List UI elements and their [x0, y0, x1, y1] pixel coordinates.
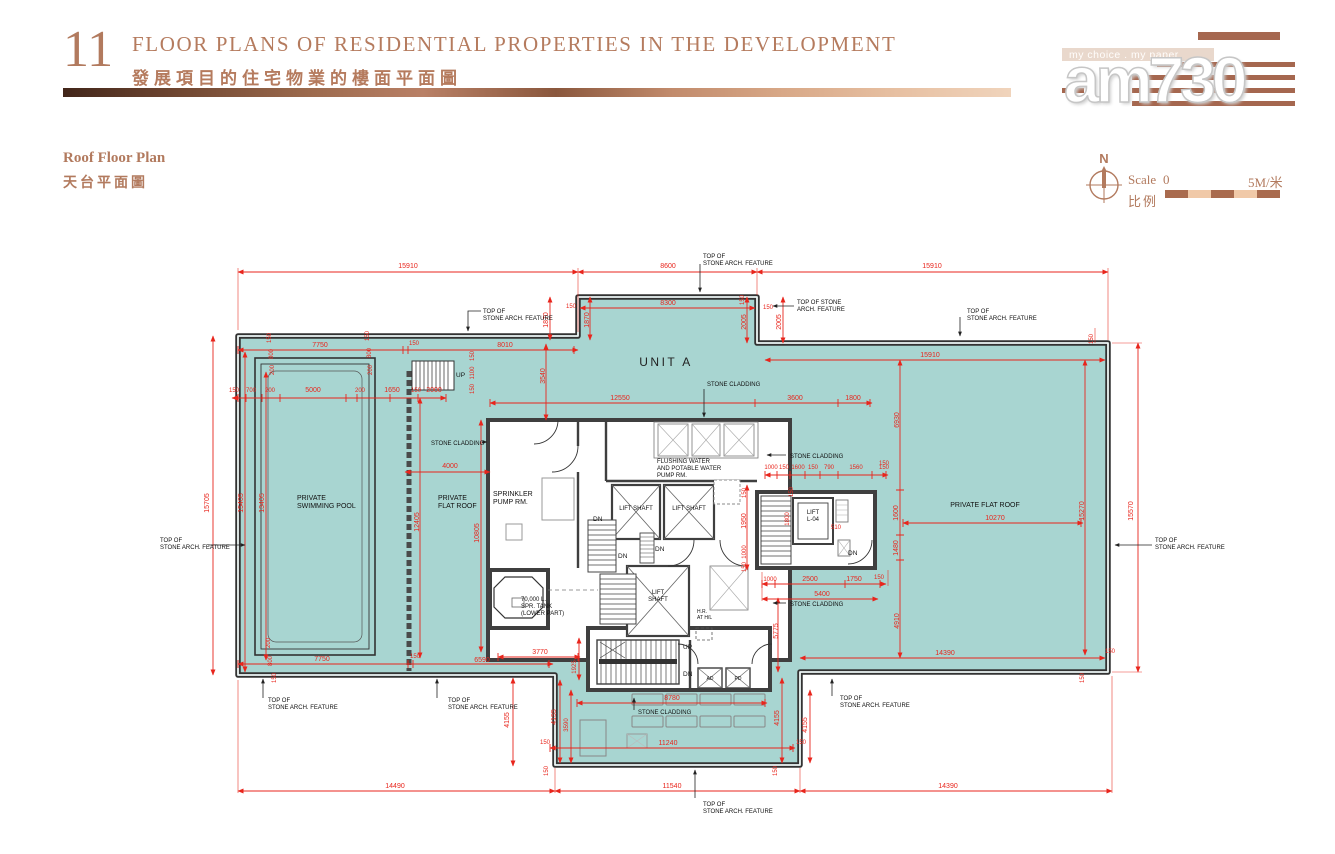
room-label: AD: [707, 676, 714, 682]
dimension-label: 150: [365, 330, 371, 341]
room-label: LIFT SHAFT: [672, 506, 706, 512]
unit-label: UNIT A: [639, 355, 692, 369]
dimension-label: 150: [879, 461, 890, 467]
annotation-label: TOP OFSTONE ARCH. FEATURE: [448, 698, 518, 711]
dimension-label: 1480: [893, 540, 900, 556]
annotation-label: TOP OFSTONE ARCH. FEATURE: [483, 309, 553, 322]
dimension-label: 15570: [1128, 501, 1135, 521]
room-label: UP: [683, 644, 692, 651]
room-label: DN: [683, 671, 693, 678]
dimension-label: 150: [742, 561, 748, 572]
dimension-label: 1560: [849, 465, 863, 471]
dimension-label: 6590: [474, 657, 490, 664]
dimension-label: 150: [779, 465, 790, 471]
dimension-label: 15270: [1079, 501, 1086, 521]
dimension-label: 5000: [305, 387, 321, 394]
dimension-label: 150: [808, 465, 819, 471]
annotation-label: TOP OFSTONE ARCH. FEATURE: [840, 696, 910, 709]
dimension-label: 150: [470, 350, 476, 361]
annotation-label: TOP OFSTONE ARCH. FEATURE: [703, 802, 773, 815]
dimension-label: 1800: [785, 512, 791, 526]
dimension-label: 1000: [764, 465, 778, 471]
dimension-label: 5400: [814, 591, 830, 598]
dimension-label: 2000: [426, 387, 442, 394]
room-label: UP: [456, 372, 465, 379]
dimension-label: 1925: [572, 660, 578, 674]
dimension-label: 14390: [935, 650, 955, 657]
dimension-label: 1750: [846, 576, 862, 583]
dimension-label: 4155: [504, 712, 511, 728]
room-label: LIFT SHAFT: [619, 506, 653, 512]
annotation-label: TOP OFSTONE ARCH. FEATURE: [1155, 538, 1225, 551]
dimension-label: 150: [410, 654, 421, 660]
dimension-label: 800: [269, 348, 275, 359]
dimension-label: 3540: [540, 368, 547, 384]
roof-stair-topleft: [412, 361, 454, 390]
room-label: LIFTL-04: [807, 510, 820, 523]
dimension-label: 2005: [776, 314, 783, 330]
dimension-label: 8600: [660, 263, 676, 270]
annotation-label: STONE CLADDING: [707, 382, 761, 388]
annotation-label: TOP OF STONEARCH. FEATURE: [797, 300, 845, 313]
dimension-label: 150: [1080, 672, 1086, 683]
dimension-label: 4000: [442, 463, 458, 470]
dimension-label: 7750: [312, 342, 328, 349]
dimension-label: 1800: [845, 395, 861, 402]
dimension-label: 150: [796, 740, 807, 746]
dimension-label: 3770: [532, 649, 548, 656]
dimension-label: 15910: [920, 352, 940, 359]
annotation-label: STONE CLADDING: [790, 454, 844, 460]
room-label: DN: [848, 550, 858, 557]
dimension-label: 150: [773, 765, 779, 776]
dimension-label: 1870: [584, 312, 591, 328]
dimension-label: 150: [742, 487, 748, 498]
room-label: DN: [618, 553, 628, 560]
dimension-label: 150: [229, 388, 240, 394]
dimension-label: 150: [272, 672, 278, 683]
dimension-label: 150: [874, 575, 885, 581]
dimension-label: 11240: [659, 740, 678, 747]
dimension-label: 3600: [787, 395, 803, 402]
dimension-label: 1950: [741, 513, 748, 529]
dimension-label: 5775: [773, 623, 780, 639]
dimension-label: 700: [246, 388, 257, 394]
dimension-label: 150: [544, 765, 550, 776]
dimension-label: 510: [831, 525, 842, 531]
room-label: SPRINKLERPUMP RM.: [493, 491, 533, 506]
dimension-label: 13405: [259, 493, 266, 513]
dimension-label: 15910: [922, 263, 942, 270]
dimension-label: 10805: [474, 523, 481, 543]
dimension-label: 150: [1105, 649, 1116, 655]
dimension-label: 150: [267, 332, 273, 343]
dimension-label: 8780: [664, 695, 680, 702]
dimension-label: 14390: [938, 783, 958, 790]
dimension-label: 200: [270, 364, 276, 375]
dimension-label: 2005: [741, 314, 748, 330]
annotation-label: STONE CLADDING: [790, 602, 844, 608]
dimension-label: 1600: [791, 465, 805, 471]
dimension-label: 150: [409, 341, 420, 347]
dimension-label: 200: [368, 364, 374, 375]
dimension-label: 4910: [894, 613, 901, 629]
dimension-label: 200: [266, 637, 272, 648]
dimension-label: 12550: [610, 395, 630, 402]
dimension-label: 10270: [985, 515, 1005, 522]
dimension-label: 6930: [894, 412, 901, 428]
room-label: DN: [655, 546, 665, 553]
dimension-label: 8010: [497, 342, 513, 349]
room-label: PD: [735, 676, 742, 682]
dimension-label: 150: [470, 383, 476, 394]
dimension-label: 1600: [893, 505, 900, 521]
dimension-label: 150: [1089, 333, 1095, 344]
floor-plan-drawing: 1591086001591083001501501870187015020052…: [0, 0, 1335, 854]
dimension-label: 3590: [564, 718, 570, 732]
dimension-label: 14490: [385, 783, 405, 790]
dimension-label: 1650: [384, 387, 400, 394]
dimension-label: 150: [540, 740, 551, 746]
dimension-label: 8300: [660, 300, 676, 307]
dimension-label: 1100: [470, 366, 476, 380]
annotation-label: TOP OFSTONE ARCH. FEATURE: [967, 309, 1037, 322]
dimension-label: 15405: [238, 493, 245, 513]
dimension-label: 4155: [774, 710, 781, 726]
dimension-label: 1000: [763, 577, 777, 583]
dimension-label: 150: [411, 388, 422, 394]
dimension-label: 150: [740, 294, 746, 305]
annotation-label: TOP OFSTONE ARCH. FEATURE: [703, 254, 773, 267]
dimension-label: 11540: [663, 783, 682, 790]
dimension-label: 790: [824, 465, 835, 471]
annotation-label: STONE CLADDING: [431, 441, 485, 447]
dimension-label: 4155: [802, 717, 809, 733]
annotation-label: STONE CLADDING: [638, 710, 692, 716]
dimension-label: 7750: [314, 656, 330, 663]
dimension-label: 150: [789, 486, 795, 497]
dimension-label: 200: [265, 388, 276, 394]
dimension-label: 4155: [551, 709, 558, 725]
room-label: DN: [593, 516, 603, 523]
dimension-label: 150: [566, 304, 577, 310]
room-label: PRIVATE FLAT ROOF: [950, 502, 1020, 509]
dimension-label: 1000: [742, 545, 748, 559]
annotation-label: TOP OFSTONE ARCH. FEATURE: [268, 698, 338, 711]
dimension-label: 15705: [204, 493, 211, 513]
dimension-label: 800: [367, 347, 373, 358]
dimension-label: 2500: [802, 576, 818, 583]
dimension-label: 800: [268, 655, 274, 666]
dimension-label: 150: [763, 305, 774, 311]
dimension-label: 200: [355, 388, 366, 394]
dimension-label: 12405: [414, 512, 421, 532]
dimension-label: 15910: [398, 263, 418, 270]
annotation-label: TOP OFSTONE ARCH. FEATURE: [160, 538, 230, 551]
